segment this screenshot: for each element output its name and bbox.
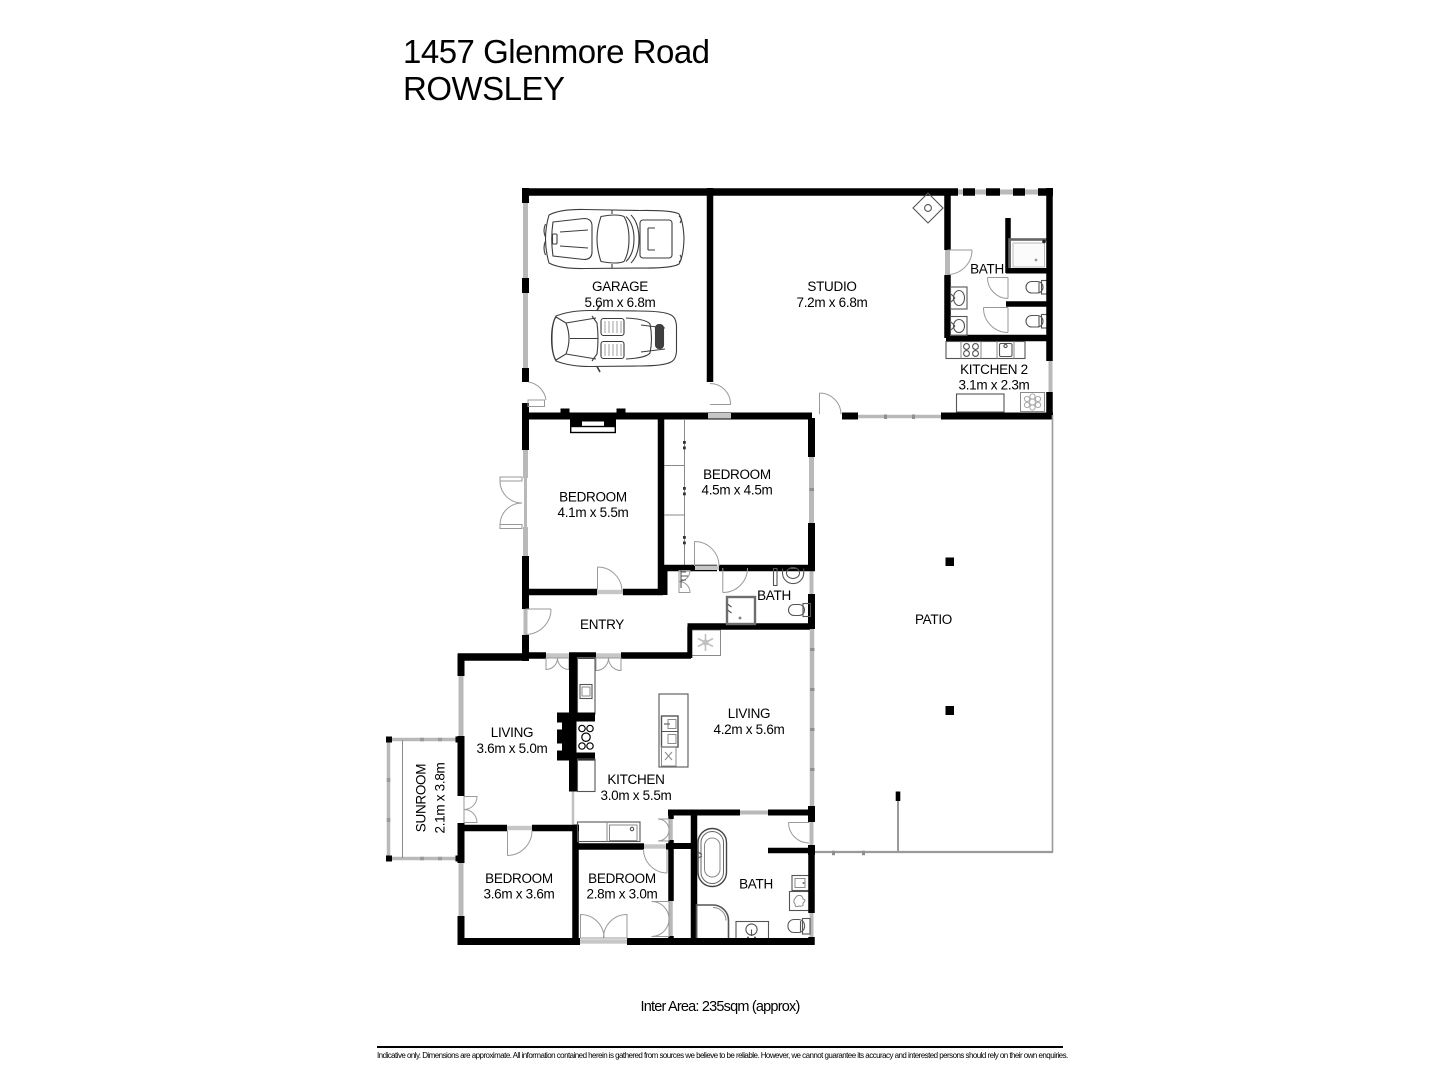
svg-text:BEDROOM: BEDROOM xyxy=(703,467,771,482)
svg-text:4.5m x 4.5m: 4.5m x 4.5m xyxy=(702,483,773,498)
svg-text:3.6m x 5.0m: 3.6m x 5.0m xyxy=(477,741,548,756)
svg-text:LIVING: LIVING xyxy=(491,725,533,740)
svg-text:LIVING: LIVING xyxy=(728,706,770,721)
svg-text:KITCHEN: KITCHEN xyxy=(607,772,664,787)
svg-text:BATH: BATH xyxy=(739,877,773,892)
svg-text:4.2m x 5.6m: 4.2m x 5.6m xyxy=(714,722,785,737)
svg-text:3.0m x 5.5m: 3.0m x 5.5m xyxy=(601,788,672,803)
svg-text:2.1m x 3.8m: 2.1m x 3.8m xyxy=(433,762,448,833)
svg-text:3.6m x 3.6m: 3.6m x 3.6m xyxy=(484,887,555,902)
svg-text:PATIO: PATIO xyxy=(915,612,952,627)
svg-text:GARAGE: GARAGE xyxy=(592,279,648,294)
svg-text:4.1m x 5.5m: 4.1m x 5.5m xyxy=(558,505,629,520)
svg-text:5.6m x 6.8m: 5.6m x 6.8m xyxy=(585,295,656,310)
svg-text:2.8m x 3.0m: 2.8m x 3.0m xyxy=(587,887,658,902)
svg-text:BATH: BATH xyxy=(970,262,1004,277)
svg-text:BEDROOM: BEDROOM xyxy=(559,490,627,505)
svg-text:SUNROOM: SUNROOM xyxy=(414,764,429,832)
svg-text:KITCHEN 2: KITCHEN 2 xyxy=(960,362,1028,377)
svg-text:BATH: BATH xyxy=(757,588,791,603)
svg-text:STUDIO: STUDIO xyxy=(807,279,856,294)
svg-text:7.2m x 6.8m: 7.2m x 6.8m xyxy=(797,295,868,310)
svg-text:BEDROOM: BEDROOM xyxy=(588,871,656,886)
svg-text:3.1m x 2.3m: 3.1m x 2.3m xyxy=(959,378,1030,393)
svg-text:BEDROOM: BEDROOM xyxy=(485,871,553,886)
svg-text:ENTRY: ENTRY xyxy=(580,617,624,632)
